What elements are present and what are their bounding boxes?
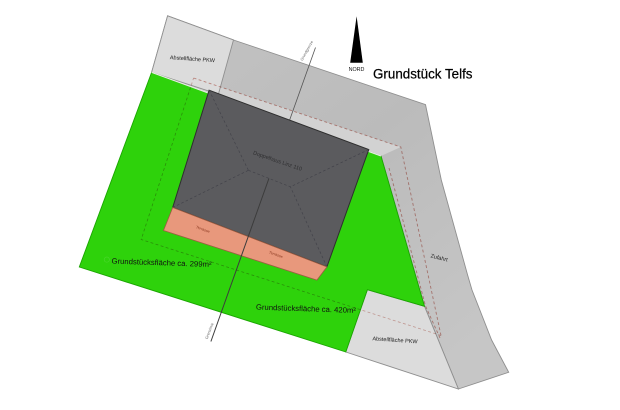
svg-text:Grundstück Telfs: Grundstück Telfs — [373, 66, 473, 81]
svg-text:Grenzlinie: Grenzlinie — [205, 322, 215, 339]
svg-text:NORD: NORD — [349, 67, 365, 73]
